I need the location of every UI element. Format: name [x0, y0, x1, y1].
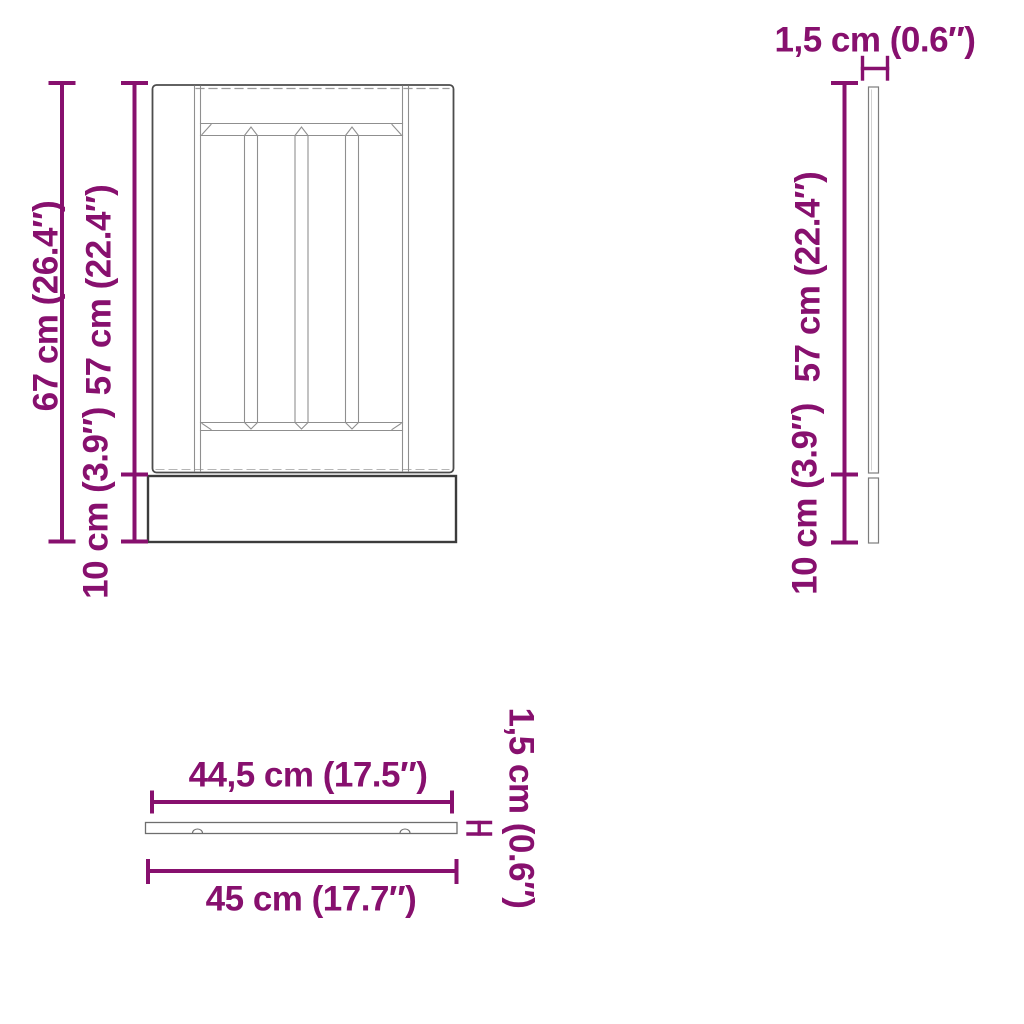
- side-dimension-lines: [833, 58, 888, 543]
- side-plinth-height-label: 10 cm (3.9″): [788, 403, 823, 595]
- door-and-plinth-height-dimension: [123, 83, 146, 542]
- panel-width-dimension: [152, 793, 452, 812]
- side-door-strip: [869, 87, 879, 473]
- front-door-height-label: 57 cm (22.4″): [82, 185, 117, 396]
- side-door-height-label: 57 cm (22.4″): [791, 172, 826, 383]
- top-dimension-lines: [148, 793, 491, 883]
- top-thickness-bracket: [468, 823, 491, 835]
- front-plinth-height-label: 10 cm (3.9″): [79, 407, 114, 599]
- top-thickness-label: 1,5 cm (0.6″): [504, 708, 539, 909]
- top-panel-width-label: 44,5 cm (17.5″): [189, 758, 428, 793]
- side-plinth-strip: [869, 478, 879, 543]
- plinth-outline: [148, 476, 456, 542]
- side-height-dimension: [833, 83, 856, 543]
- side-thickness-label: 1,5 cm (0.6″): [775, 23, 976, 58]
- side-view-drawing: [869, 87, 879, 543]
- front-view-drawing: [148, 85, 456, 542]
- side-thickness-bracket: [863, 58, 888, 80]
- dimension-diagram: 67 cm (26.4″) 57 cm (22.4″) 10 cm (3.9″)…: [0, 0, 1024, 1024]
- top-view-drawing: [146, 823, 458, 834]
- front-total-height-label: 67 cm (26.4″): [29, 201, 64, 412]
- top-total-width-label: 45 cm (17.7″): [206, 882, 417, 917]
